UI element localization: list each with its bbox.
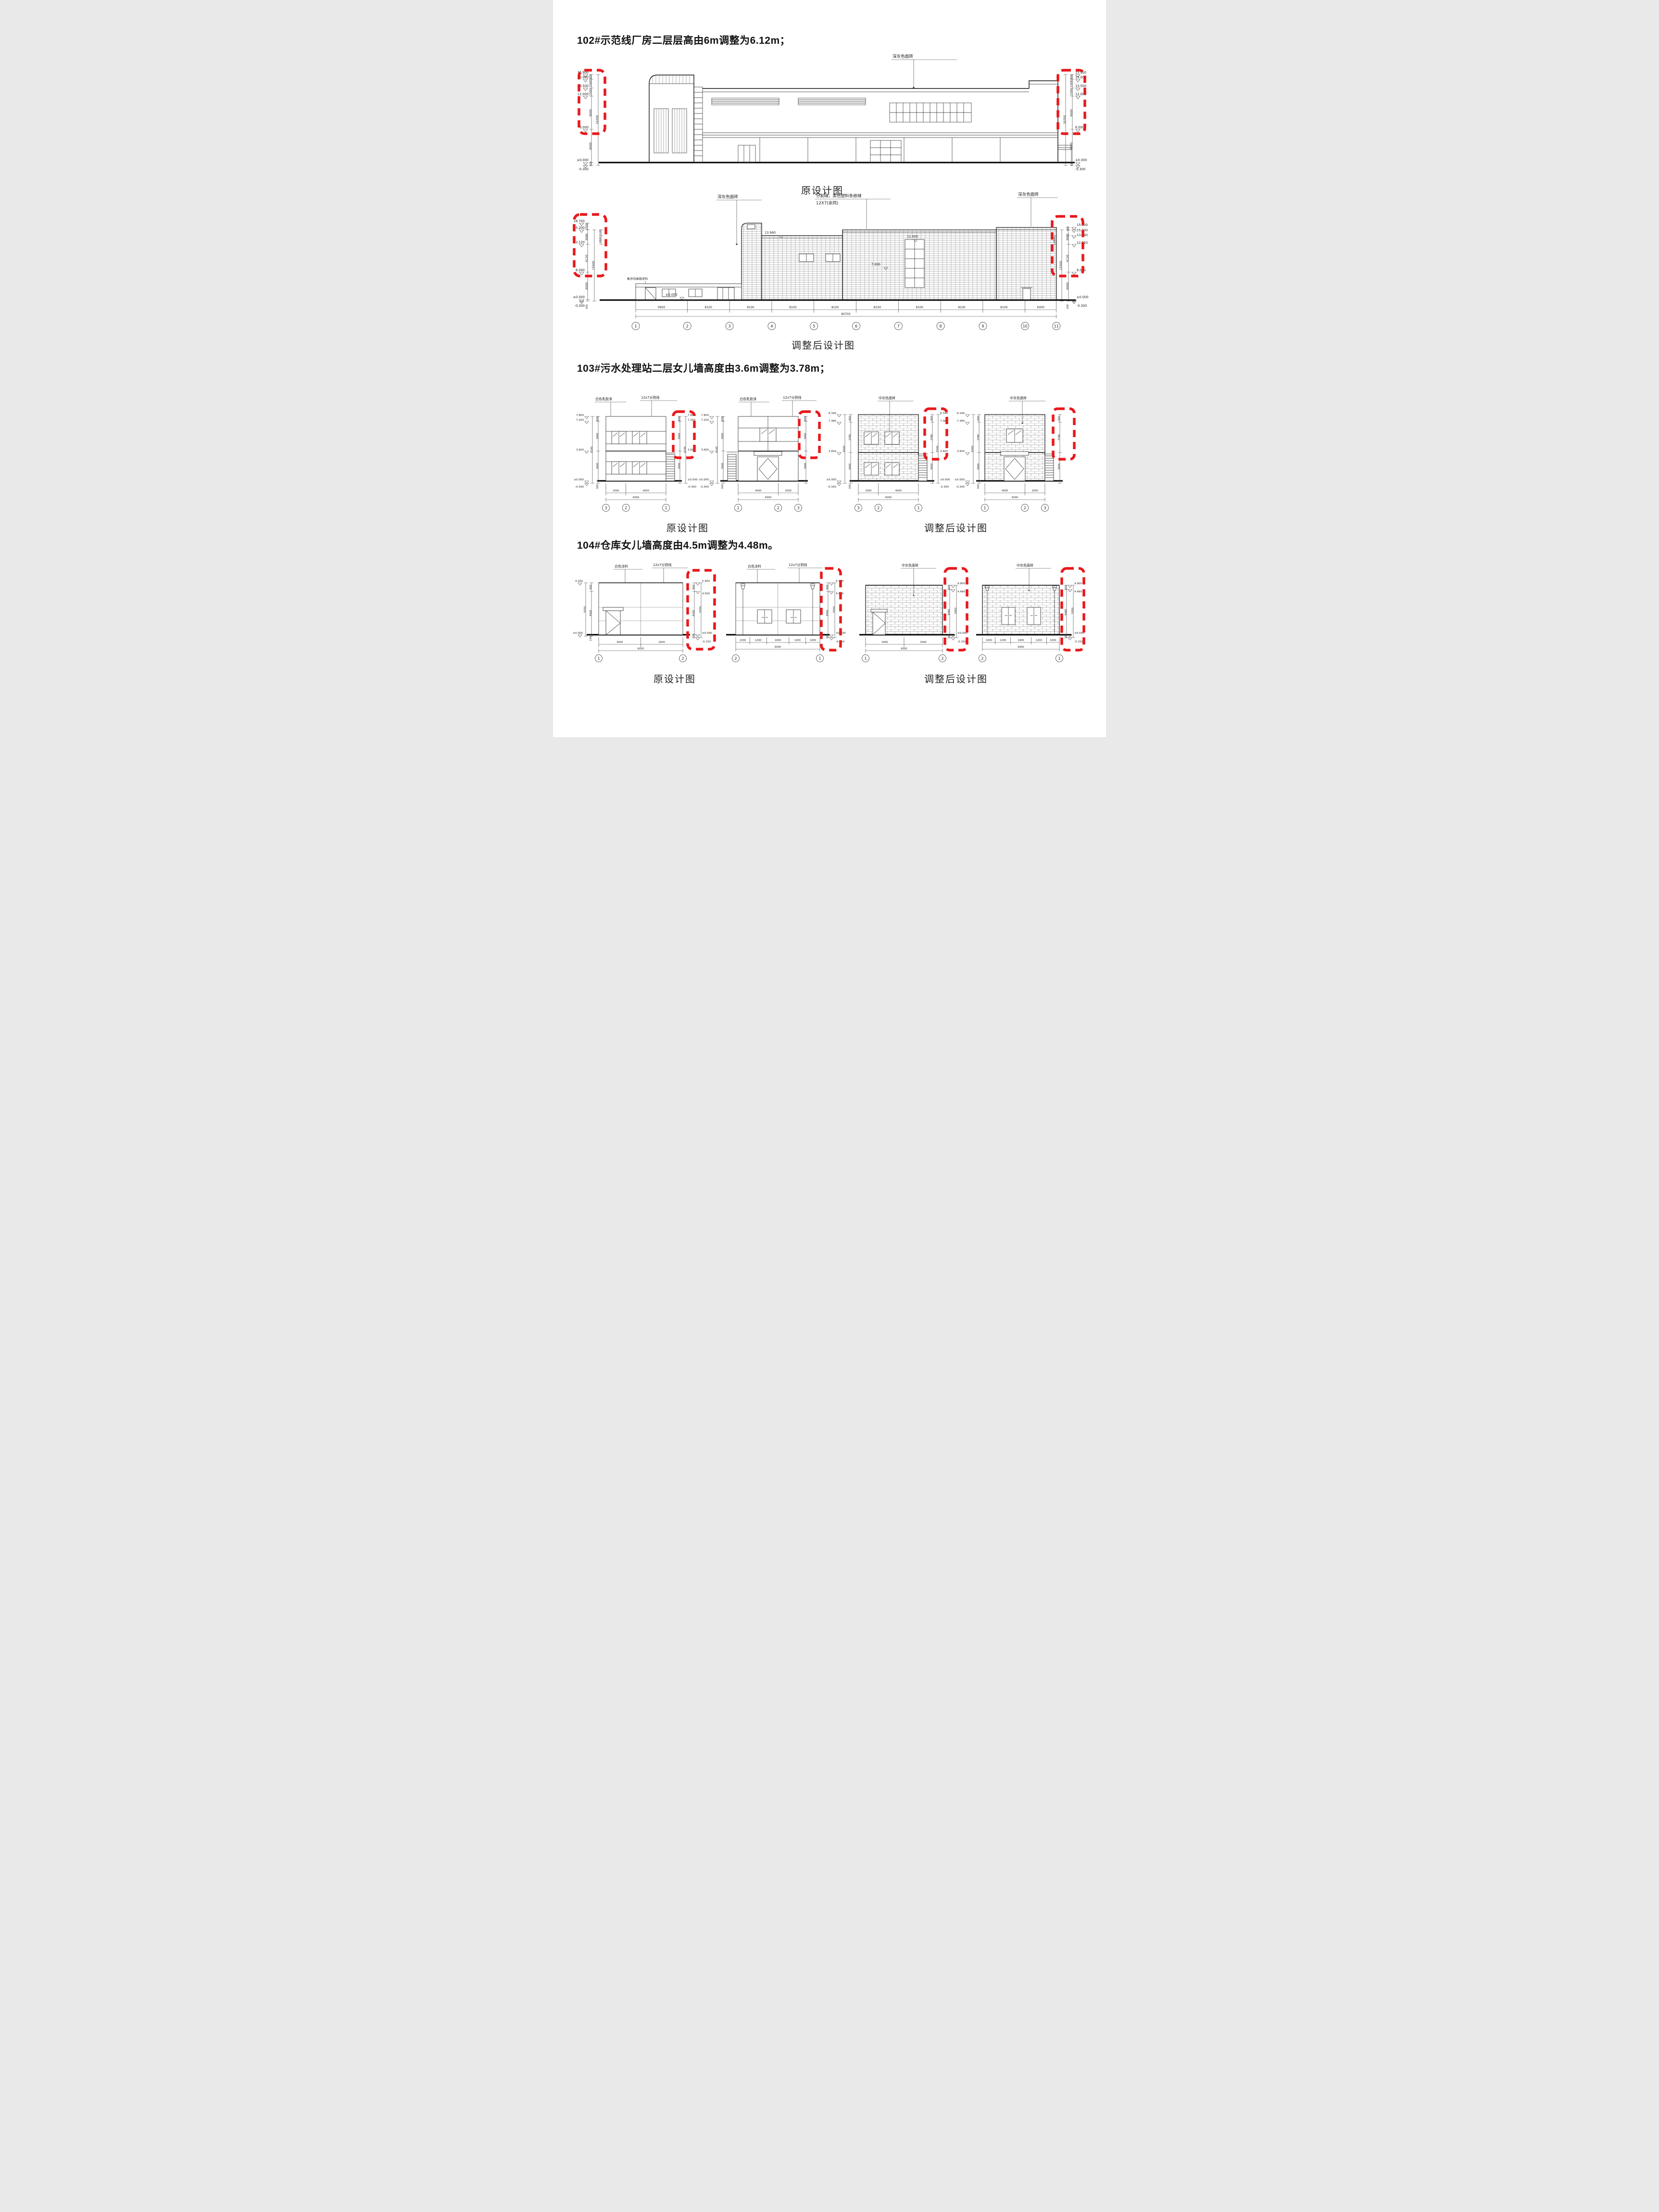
column-grid: 4000 2000 6000 1 2 3 bbox=[981, 483, 1049, 512]
grid-total-label: 6000 bbox=[901, 648, 907, 651]
dim-chain-right: 600 3600 3600 bbox=[804, 416, 808, 483]
s103-original-view1: 白色乳胶漆 12x7分割线 7.800 7.200 3.600 ±0.000 -… bbox=[572, 394, 695, 515]
grid-bubble-label: 2 bbox=[625, 506, 627, 510]
level-label: 12.000 bbox=[578, 92, 589, 96]
level-label: ±0.000 bbox=[666, 293, 677, 297]
building-outline bbox=[859, 585, 955, 635]
facade-note: 深灰色面砖 bbox=[892, 53, 957, 88]
level-label: 4.480 bbox=[957, 591, 965, 593]
level-label: 8.340 bbox=[957, 412, 965, 415]
dim-label: 150 bbox=[826, 634, 829, 639]
note-label: 象牙白高级涂料 bbox=[627, 277, 648, 281]
column-grid: 2000 4000 6000 3 2 1 bbox=[603, 483, 670, 512]
column-grid: 1000 1200 1600 1200 1000 6000 2 1 bbox=[732, 637, 824, 662]
dim-label: 3780 bbox=[977, 434, 980, 440]
dim-label: 5550 bbox=[699, 606, 702, 613]
dim-label: 600 bbox=[804, 416, 807, 421]
grid-dim-label: 1200 bbox=[1036, 639, 1042, 642]
dim-label: 300 bbox=[1070, 162, 1073, 166]
dim-label: 1820 bbox=[599, 237, 602, 243]
grid-bubble-label: 1 bbox=[737, 506, 739, 510]
note-label: 白色涂料 bbox=[615, 564, 628, 568]
dim-chain-left: 7.800 7.200 3.600 ±0.000 -0.300 600 3600… bbox=[574, 414, 600, 489]
dim-label: 420 bbox=[1065, 585, 1068, 590]
grid-bubble-label: 2 bbox=[981, 656, 983, 661]
s102-original-drawing: 深灰色面砖 bbox=[577, 51, 1087, 180]
level-label: -0.150 bbox=[957, 641, 966, 643]
level-label: 7.380 bbox=[829, 420, 836, 423]
dim-label: 16200 bbox=[1063, 115, 1067, 124]
note-label: 中灰色面砖 bbox=[1017, 563, 1033, 567]
level-label: 3.600 bbox=[829, 450, 836, 453]
dim-label: 3080 bbox=[1066, 233, 1069, 240]
dim-label: 6000 bbox=[1070, 109, 1073, 116]
dim-label: 150 bbox=[692, 634, 695, 639]
level-label: 16.700 bbox=[574, 219, 585, 223]
level-label: 11.000 bbox=[907, 235, 918, 239]
dim-label: 150 bbox=[948, 634, 951, 639]
dim-label: 3600 bbox=[804, 433, 807, 439]
dim-chain-right: 5.400 4.500 ±0.000 -0.150 900 4500 150 5… bbox=[826, 580, 846, 643]
s103-adjusted-caption: 调整后设计图 bbox=[908, 520, 1004, 534]
grid-bubble-label: 9 bbox=[981, 324, 984, 328]
dim-label: 6000 bbox=[1070, 142, 1073, 150]
grid-bubble-label: 2 bbox=[686, 324, 689, 328]
level-label: -0.150 bbox=[1074, 641, 1083, 643]
grid-bubble-label: 1 bbox=[917, 506, 919, 510]
dim-label: 660 bbox=[930, 416, 933, 421]
dim-label: 4480 bbox=[948, 609, 951, 615]
dim-label: 300 bbox=[596, 484, 599, 489]
grid-dim-label: 8100 bbox=[705, 306, 712, 309]
level-label: 13.940 bbox=[765, 231, 776, 235]
dim-chain-left: 7.800 7.200 3.600 ±0.000 -0.300 600 3600… bbox=[699, 414, 725, 489]
dim-label: 660 bbox=[977, 416, 980, 421]
level-label: 4.900 bbox=[957, 582, 965, 585]
grid-bubble-label: 7 bbox=[897, 324, 900, 328]
dim-label: 1500 bbox=[585, 223, 589, 230]
grid-dim-label: 4000 bbox=[895, 490, 902, 492]
level-label: ±0.000 bbox=[574, 478, 584, 481]
grid-bubble-label: 1 bbox=[665, 506, 667, 510]
building-outline bbox=[976, 585, 1071, 635]
s104-original-view2: 白色涂料 12x7分割线 5.400 4.500 ±0.000 -0.150 9… bbox=[721, 562, 842, 665]
dim-label: 8340 bbox=[936, 446, 939, 452]
column-grid: 3000 3000 6000 1 2 bbox=[862, 637, 946, 662]
dim-label: 5050 bbox=[1071, 607, 1074, 614]
column-grid: 3000 3000 6000 1 2 bbox=[595, 637, 687, 662]
dim-label: 900 bbox=[1070, 74, 1073, 80]
s102-adjusted-caption: 调整后设计图 bbox=[775, 338, 871, 352]
note-label: 12x7分割线 bbox=[653, 563, 672, 567]
column-grid: 1000 1200 1600 1200 1000 6000 2 1 bbox=[979, 637, 1063, 662]
grid-dim-label: 2000 bbox=[613, 490, 619, 492]
grid-dim-label: 1000 bbox=[740, 639, 746, 642]
level-label: 8.340 bbox=[829, 412, 836, 415]
dim-label: 1500 bbox=[1070, 88, 1073, 96]
column-grid: 2000 4000 6000 3 2 1 bbox=[855, 483, 922, 512]
note-label: 深灰色面砖 bbox=[1018, 191, 1039, 197]
grid-bubble-label: 1 bbox=[864, 656, 867, 661]
grid-dim-label: 8100 bbox=[916, 306, 923, 309]
grid-dim-label: 3000 bbox=[920, 641, 926, 644]
grid-total-label: 6000 bbox=[633, 496, 639, 499]
level-label: 7.800 bbox=[701, 414, 709, 417]
level-label: ±0.000 bbox=[702, 632, 712, 635]
dim-label: 6000 bbox=[585, 282, 589, 289]
dim-label: 3600 bbox=[721, 433, 724, 439]
grid-dim-label: 2000 bbox=[1032, 490, 1038, 492]
dim-label: 3780 bbox=[849, 434, 852, 440]
grid-bubble-label: 1 bbox=[983, 506, 986, 510]
grid-dim-label: 6000 bbox=[1037, 306, 1044, 309]
dim-label: 600 bbox=[596, 416, 599, 421]
grid-bubble-label: 1 bbox=[1058, 656, 1060, 661]
dim-label: 1500 bbox=[589, 88, 592, 96]
dim-chain-left: 15.900 15.000 13.500 12.000 6.000 ±0.000… bbox=[577, 71, 600, 171]
dim-label: 8100 bbox=[716, 446, 718, 452]
dim-label: 660 bbox=[849, 416, 852, 421]
grid-bubble-label: 2 bbox=[681, 656, 684, 661]
dim-label: 3780 bbox=[1058, 434, 1061, 440]
note-label: 12X7(余同) bbox=[816, 200, 838, 206]
level-label: ±0.000 bbox=[688, 478, 698, 481]
level-label: -0.300 bbox=[828, 486, 836, 489]
dim-label: 16200 bbox=[596, 115, 599, 124]
building-outline bbox=[976, 415, 1063, 481]
level-label: ±0.000 bbox=[573, 632, 583, 635]
dim-label: 300 bbox=[1067, 304, 1069, 309]
dim-label: 3600 bbox=[596, 433, 599, 439]
level-label: -0.300 bbox=[700, 486, 709, 489]
dim-label: 900 bbox=[692, 585, 695, 590]
level-label: -0.300 bbox=[1075, 167, 1085, 171]
level-label: -0.300 bbox=[575, 304, 585, 308]
dim-label: 5550 bbox=[833, 606, 836, 613]
dim-label: 3600 bbox=[678, 433, 681, 439]
grid-bubble-label: 3 bbox=[729, 324, 731, 328]
grid-dim-label: 8100 bbox=[1000, 306, 1007, 309]
level-label: 5.400 bbox=[702, 580, 710, 583]
grid-bubble-label: 3 bbox=[604, 506, 607, 510]
grid-total-label: 6000 bbox=[765, 496, 771, 499]
level-label: 7.200 bbox=[701, 419, 709, 422]
dim-label: 4500 bbox=[692, 610, 695, 616]
dim-label: 1500 bbox=[1070, 80, 1073, 87]
dim-label: 300 bbox=[721, 484, 724, 489]
dim-label: 3600 bbox=[596, 463, 599, 469]
building-outline bbox=[726, 583, 829, 635]
s103-original-caption: 原设计图 bbox=[640, 520, 736, 534]
dim-label: 8100 bbox=[591, 446, 593, 452]
grid-dim-label: 1000 bbox=[986, 639, 992, 642]
grid-total-label: 6000 bbox=[775, 646, 781, 649]
s104-original-view1: 白色涂料 12x7分割线 4.200 ±0.000 900 4500 150 5… bbox=[572, 562, 716, 665]
grid-dim-label: 2000 bbox=[785, 490, 792, 492]
level-label: -0.300 bbox=[578, 167, 589, 171]
dim-label: 3600 bbox=[678, 463, 681, 469]
level-label: -0.300 bbox=[956, 486, 965, 489]
level-label: ±0.000 bbox=[699, 478, 709, 481]
grid-bubble-label: 1 bbox=[634, 324, 637, 328]
dim-label: 3600 bbox=[977, 464, 980, 470]
note-label: 12x7分割线 bbox=[641, 395, 660, 400]
dim-label: 900 bbox=[589, 74, 592, 80]
grid-dim-label: 3000 bbox=[659, 641, 665, 644]
dim-label: 3780 bbox=[930, 434, 933, 440]
level-label: 3.600 bbox=[957, 450, 965, 453]
dim-chain-left: 8.340 7.380 3.600 ±0.000 -0.300 660 3780… bbox=[826, 412, 853, 489]
building-outline bbox=[597, 416, 682, 481]
dim-label: 3600 bbox=[804, 463, 807, 469]
grid-bubble-label: 2 bbox=[941, 656, 943, 661]
dim-label: 6000 bbox=[1066, 282, 1069, 289]
note-label: 分割缝，黑色塑料条嵌缝 bbox=[816, 193, 862, 199]
dim-label: 600 bbox=[1067, 226, 1069, 231]
dim-chain-right: 15.900 15.000 13.500 12.000 6.000 ±0.000… bbox=[1063, 71, 1087, 171]
grid-dim-label: 8100 bbox=[789, 306, 796, 309]
level-label: 7.380 bbox=[957, 420, 965, 423]
level-label: -0.300 bbox=[940, 486, 949, 489]
section-102-title: 102#示范线厂房二层层高由6m调整为6.12m； bbox=[577, 33, 790, 47]
column-grid: 9900 8100 8100 8100 8100 8100 8100 8100 … bbox=[632, 301, 1060, 330]
grid-bubble-label: 5 bbox=[813, 324, 815, 328]
s103-adjusted-view1: 中灰色面砖 8.340 7.380 3.600 ±0.000 -0.300 66… bbox=[825, 394, 947, 515]
grid-bubble-label: 11 bbox=[1054, 324, 1059, 328]
dim-label: 4480 bbox=[1065, 609, 1068, 615]
grid-dim-label: 1200 bbox=[755, 639, 761, 642]
dim-label: 8340 bbox=[843, 446, 846, 452]
level-label: 13.500 bbox=[1075, 84, 1086, 88]
grid-total-label: 6000 bbox=[885, 496, 892, 499]
note-label: 深灰色面砖 bbox=[717, 194, 738, 200]
dim-label: 3600 bbox=[930, 464, 933, 470]
level-label: 6.000 bbox=[1075, 126, 1084, 129]
building-outline bbox=[599, 75, 1075, 163]
grid-dim-label: 8100 bbox=[831, 306, 839, 309]
grid-bubble-label: 2 bbox=[734, 656, 737, 661]
building-outline bbox=[720, 416, 808, 481]
dim-chain-left: 4.200 ±0.000 900 4500 150 5550 bbox=[573, 580, 593, 641]
s104-adjusted-view1: 中灰色面砖 4.900 4.480 ±0.000 -0.150 420 4480… bbox=[858, 562, 969, 665]
dim-label: 300 bbox=[590, 162, 592, 166]
grid-total-label: 6000 bbox=[1018, 646, 1024, 649]
dim-label: 1500 bbox=[589, 80, 592, 87]
grid-bubble-label: 2 bbox=[1024, 506, 1026, 510]
note-label: 白色涂料 bbox=[748, 564, 761, 568]
dim-label: 6000 bbox=[589, 109, 592, 116]
dim-label: 5050 bbox=[955, 607, 957, 614]
grid-bubble-label: 4 bbox=[770, 324, 773, 328]
level-label: -0.300 bbox=[688, 486, 696, 489]
grid-bubble-label: 1 bbox=[818, 656, 821, 661]
level-label: -0.150 bbox=[702, 641, 711, 643]
level-label: ±0.000 bbox=[955, 478, 965, 481]
highlight-box bbox=[799, 412, 819, 458]
level-label: 4.900 bbox=[1074, 582, 1082, 585]
grid-dim-label: 1200 bbox=[1000, 639, 1006, 642]
dim-label: 420 bbox=[948, 585, 951, 590]
s103-adjusted-view2: 中灰色面砖 8.340 7.380 3.600 ±0.000 -0.300 66… bbox=[956, 394, 1079, 515]
dim-chain-right: 660 3780 3600 bbox=[1058, 415, 1062, 483]
s103-original-view2: 白色乳胶漆 12x7分割线 7.800 7.200 3.600 ±0.000 -… bbox=[697, 394, 820, 515]
grid-bubble-label: 2 bbox=[877, 506, 880, 510]
grid-dim-label: 1000 bbox=[1050, 639, 1056, 642]
level-label: 8.340 bbox=[940, 412, 948, 415]
level-label: 6.000 bbox=[576, 268, 585, 272]
level-label: 7.200 bbox=[576, 419, 584, 422]
note-label: 中灰色面砖 bbox=[1010, 396, 1027, 400]
dim-label: 1820 bbox=[1053, 237, 1056, 243]
dim-label: 3600 bbox=[1058, 464, 1061, 470]
level-label: 4.200 bbox=[575, 580, 583, 583]
dim-label: 150 bbox=[590, 636, 592, 641]
level-label: ±0.000 bbox=[573, 295, 585, 299]
grid-dim-label: 3000 bbox=[616, 641, 623, 644]
dim-chain-left: 16.700 15.200 12.120 6.000 ±0.000 -0.300… bbox=[573, 219, 603, 309]
dim-label: 600 bbox=[678, 416, 681, 421]
document-page: 102#示范线厂房二层层高由6m调整为6.12m； 深灰色面砖 bbox=[553, 0, 1106, 737]
dim-label: 3600 bbox=[721, 463, 724, 469]
grid-dim-label: 4000 bbox=[755, 490, 761, 492]
note-label: 12x7分割线 bbox=[783, 395, 802, 400]
grid-dim-label: 1200 bbox=[794, 639, 801, 642]
grid-dim-label: 3000 bbox=[881, 641, 888, 644]
grid-bubble-label: 2 bbox=[777, 506, 779, 510]
grid-bubble-label: 8 bbox=[940, 324, 942, 328]
dim-label: 150 bbox=[1065, 634, 1068, 639]
dim-label: 6120 bbox=[585, 254, 589, 262]
grid-bubble-label: 6 bbox=[855, 324, 857, 328]
grid-dim-label: 9900 bbox=[658, 306, 665, 309]
grid-dim-label: 4000 bbox=[643, 490, 649, 492]
dim-label: 300 bbox=[586, 304, 589, 309]
grid-bubbles: 1 2 3 4 5 6 7 8 9 10 11 bbox=[632, 322, 1060, 330]
grid-dim-label: 8100 bbox=[747, 306, 754, 309]
level-label: ±0.000 bbox=[826, 478, 836, 481]
grid-dim-label: 8100 bbox=[958, 306, 965, 309]
dim-label: 1120 bbox=[599, 229, 602, 236]
dim-label: 6120 bbox=[1066, 254, 1069, 262]
grid-dim-label: 1600 bbox=[1018, 639, 1024, 642]
note-label: 白色乳胶漆 bbox=[595, 397, 612, 401]
level-label: 6.000 bbox=[1077, 268, 1086, 272]
grid-bubble-label: 3 bbox=[857, 506, 859, 510]
s104-adjusted-view2: 中灰色面砖 4.900 4.480 ±0.000 -0.150 420 4480… bbox=[975, 562, 1086, 665]
highlight-box bbox=[574, 214, 606, 276]
level-label: -0.300 bbox=[1077, 304, 1087, 308]
grid-bubble-label: 1 bbox=[597, 656, 600, 661]
dim-label: 15500 bbox=[1059, 261, 1063, 270]
level-label: -0.300 bbox=[575, 486, 584, 489]
dim-label: 660 bbox=[1058, 416, 1061, 421]
grid-total-label: 6000 bbox=[1012, 496, 1018, 499]
note-label: 深灰色面砖 bbox=[892, 53, 913, 59]
level-label: 7.000 bbox=[871, 263, 880, 266]
dim-label: 300 bbox=[849, 484, 852, 489]
note-label: 中灰色面砖 bbox=[879, 396, 895, 400]
section-103-title: 103#污水处理站二层女儿墙高度由3.6m调整为3.78m； bbox=[577, 361, 830, 375]
grid-total-label: 6000 bbox=[638, 648, 644, 651]
level-label: ±0.000 bbox=[940, 478, 950, 481]
grid-dim-label: 1000 bbox=[810, 639, 816, 642]
grid-dim-label: 1600 bbox=[775, 639, 781, 642]
level-label: 4.500 bbox=[702, 592, 710, 595]
building-outline bbox=[600, 223, 1076, 300]
s104-adjusted-caption: 调整后设计图 bbox=[908, 671, 1004, 685]
dim-label: 3080 bbox=[585, 233, 589, 240]
dim-label: 6000 bbox=[589, 142, 592, 150]
grid-dim-label: 8100 bbox=[874, 306, 881, 309]
dim-label: 3600 bbox=[849, 464, 852, 470]
building-outline bbox=[587, 583, 690, 635]
dim-label: 900 bbox=[590, 585, 592, 590]
dim-label: 8340 bbox=[971, 446, 974, 452]
dim-label: 600 bbox=[721, 416, 724, 421]
column-grid: 4000 2000 6000 1 2 3 bbox=[735, 483, 802, 512]
dim-label: 4500 bbox=[826, 610, 829, 616]
level-label: 4.480 bbox=[1074, 591, 1082, 593]
grid-dim-label: 4000 bbox=[1002, 490, 1008, 492]
level-label: ±0.000 bbox=[1075, 158, 1087, 162]
dim-chain-left: 8.340 7.380 3.600 ±0.000 -0.300 660 3780… bbox=[955, 412, 981, 489]
note-label: 12x7分割线 bbox=[789, 563, 807, 567]
level-label: 3.600 bbox=[701, 449, 709, 452]
dim-label: 5550 bbox=[584, 606, 587, 613]
grid-bubble-label: 3 bbox=[1043, 506, 1046, 510]
level-label: ±0.000 bbox=[577, 158, 589, 162]
level-label: 3.600 bbox=[940, 450, 948, 453]
building-outline bbox=[850, 415, 934, 481]
highlight-box bbox=[1053, 409, 1074, 459]
section-104-title: 104#仓库女儿墙高度由4.5m调整为4.48m。 bbox=[577, 538, 779, 552]
dim-label: 8100 bbox=[684, 446, 687, 452]
dim-label: 300 bbox=[977, 484, 980, 489]
s102-adjusted-drawing: 深灰色面砖 分割缝，黑色塑料条嵌缝 12X7(余同) 深灰色面砖 象牙白高级涂料 bbox=[573, 191, 1090, 335]
dim-chain-right: 5.400 4.500 ±0.000 -0.150 900 4500 150 5… bbox=[692, 580, 712, 643]
level-label: 7.800 bbox=[576, 414, 584, 417]
grid-bubble-label: 10 bbox=[1023, 324, 1028, 328]
level-label: ±0.000 bbox=[1077, 295, 1088, 299]
note-label: 白色乳胶漆 bbox=[740, 397, 756, 401]
dim-label: 15500 bbox=[592, 261, 595, 270]
dim-label: 4500 bbox=[590, 610, 592, 616]
level-label: 3.600 bbox=[576, 449, 584, 452]
s104-original-caption: 原设计图 bbox=[627, 671, 723, 685]
level-label: 6.000 bbox=[579, 126, 589, 129]
grid-total-label: 80700 bbox=[841, 313, 850, 316]
grid-dim-label: 2000 bbox=[865, 490, 871, 492]
note-label: 中灰色面砖 bbox=[902, 563, 918, 567]
dim-label: 900 bbox=[826, 585, 829, 590]
grid-bubble-label: 3 bbox=[797, 506, 799, 510]
